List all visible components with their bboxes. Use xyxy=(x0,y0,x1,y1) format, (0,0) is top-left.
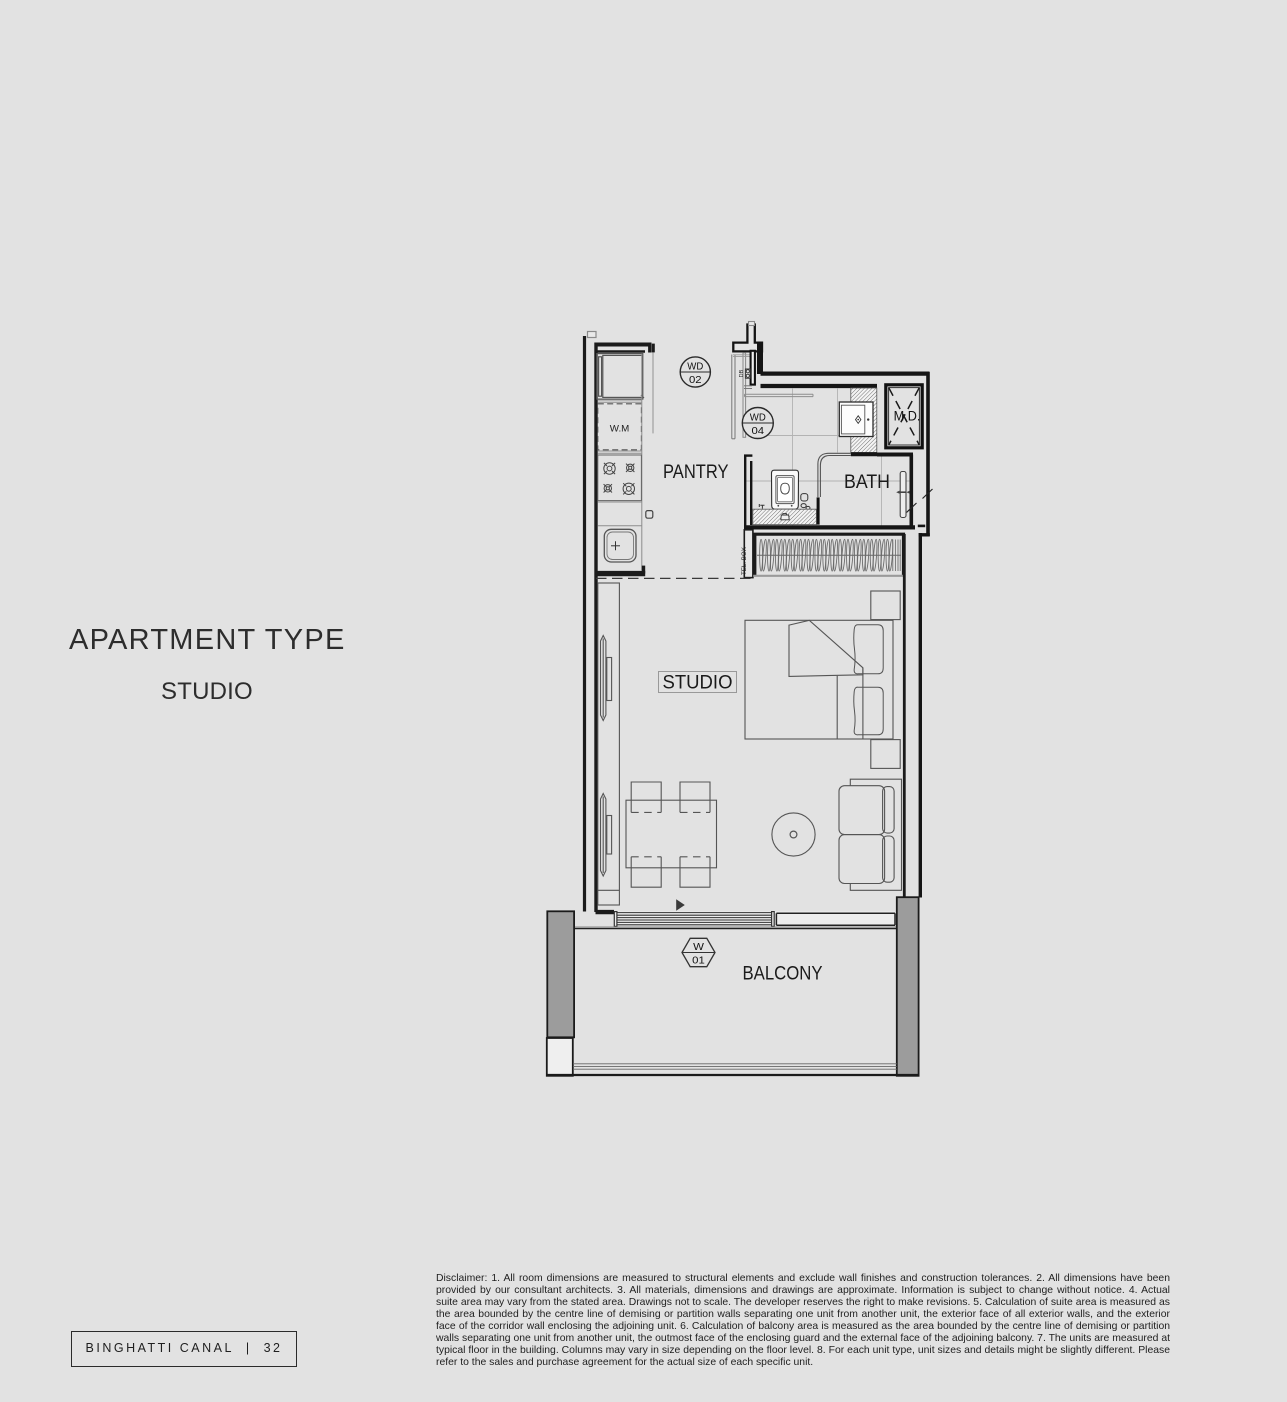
svg-text:BALCONY: BALCONY xyxy=(743,963,823,985)
svg-text:TEL. BOX: TEL. BOX xyxy=(741,547,748,575)
svg-text:01: 01 xyxy=(692,956,705,967)
svg-text:WD: WD xyxy=(750,413,766,424)
svg-text:DB: DB xyxy=(739,369,745,377)
svg-text:W.M: W.M xyxy=(610,424,630,435)
svg-text:W: W xyxy=(693,942,704,953)
svg-text:M.D.: M.D. xyxy=(894,408,921,424)
svg-text:BATH: BATH xyxy=(844,471,890,493)
svg-text:02: 02 xyxy=(689,375,702,386)
svg-text:WD: WD xyxy=(687,362,703,373)
svg-text:04: 04 xyxy=(752,426,765,437)
svg-text:PANTRY: PANTRY xyxy=(663,461,729,483)
svg-text:STUDIO: STUDIO xyxy=(663,672,733,694)
